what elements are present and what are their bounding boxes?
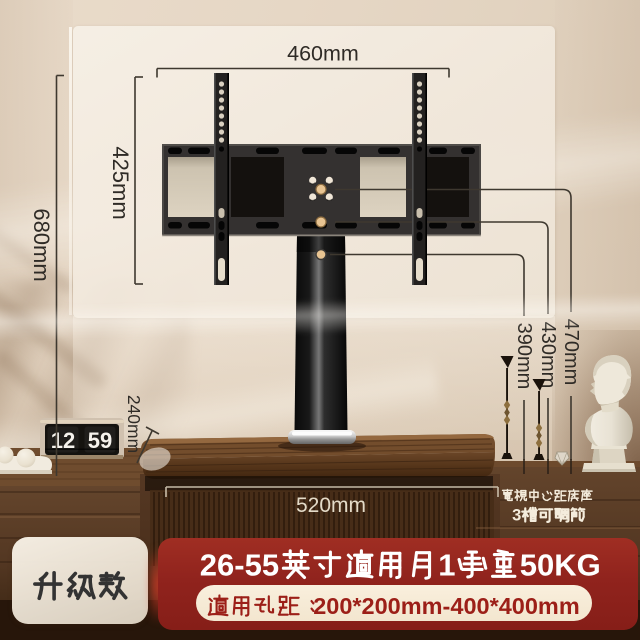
svg-text:26-55: 26-55 xyxy=(200,548,279,583)
svg-text:1: 1 xyxy=(438,548,455,583)
svg-text:50KG: 50KG xyxy=(520,548,601,583)
svg-text:200*200mm-400*400mm: 200*200mm-400*400mm xyxy=(313,593,580,619)
